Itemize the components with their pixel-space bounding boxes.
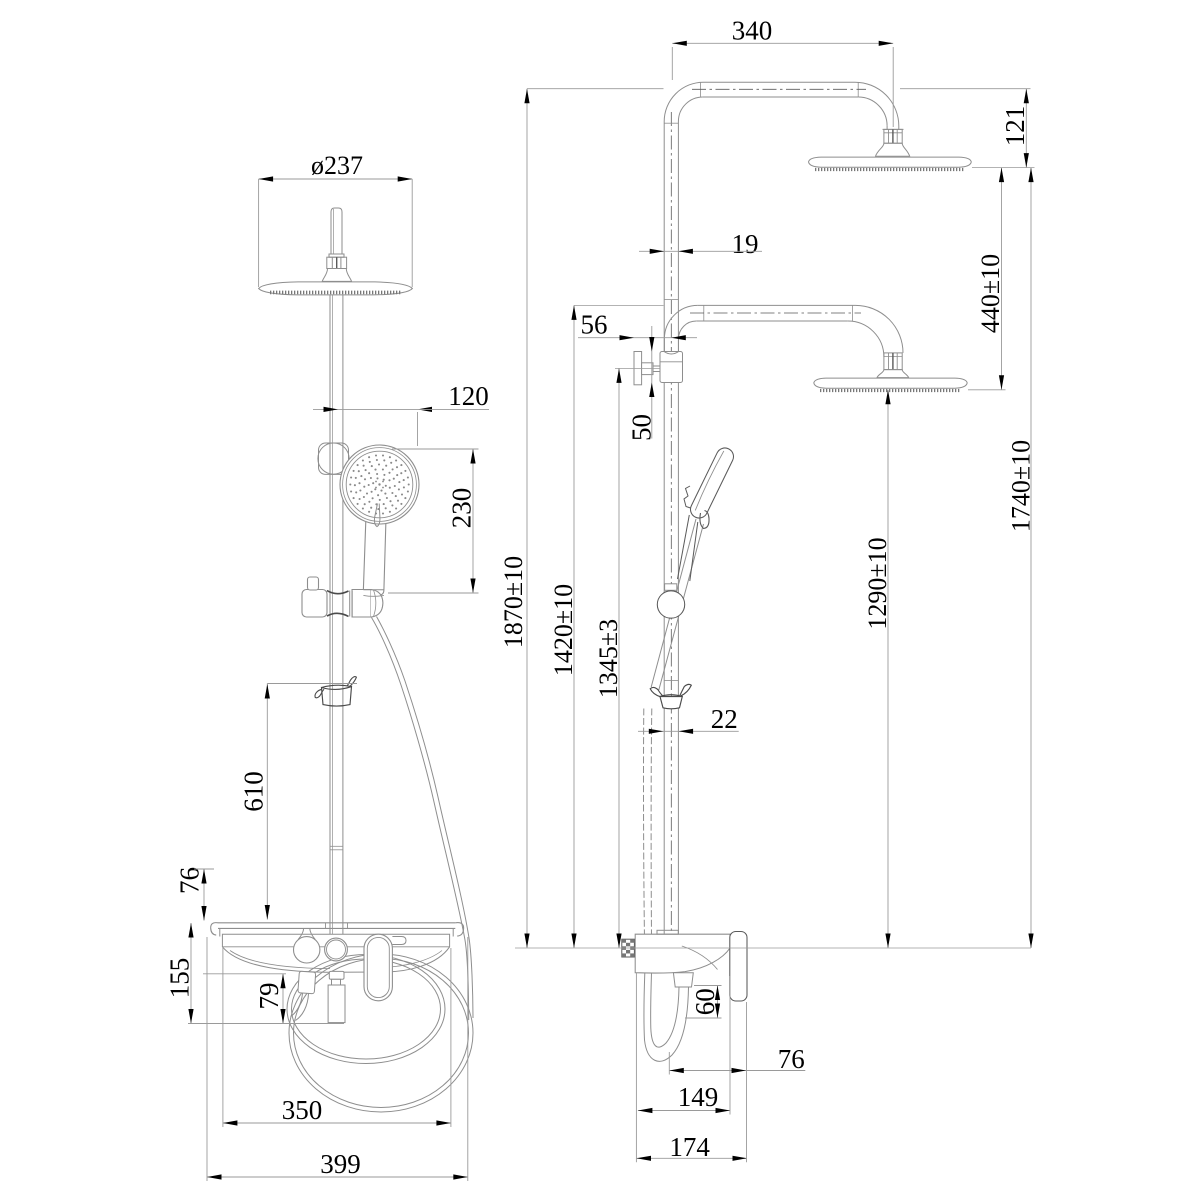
svg-text:440±10: 440±10 <box>976 254 1005 333</box>
svg-text:149: 149 <box>678 1082 719 1112</box>
svg-text:60: 60 <box>690 988 720 1015</box>
svg-text:155: 155 <box>165 958 195 999</box>
svg-text:230: 230 <box>447 488 477 529</box>
svg-text:610: 610 <box>239 771 269 812</box>
svg-text:399: 399 <box>320 1149 361 1179</box>
svg-text:1870±10: 1870±10 <box>499 556 528 648</box>
svg-text:56: 56 <box>581 310 608 340</box>
svg-text:174: 174 <box>669 1132 710 1162</box>
svg-text:22: 22 <box>711 704 738 734</box>
svg-text:120: 120 <box>448 381 489 411</box>
svg-text:79: 79 <box>254 983 284 1010</box>
svg-text:76: 76 <box>175 867 205 894</box>
svg-text:121: 121 <box>1000 106 1030 147</box>
svg-text:ø237: ø237 <box>311 151 363 180</box>
svg-text:340: 340 <box>732 16 773 46</box>
svg-text:19: 19 <box>732 229 759 259</box>
svg-text:350: 350 <box>282 1095 323 1125</box>
svg-text:76: 76 <box>778 1044 805 1074</box>
